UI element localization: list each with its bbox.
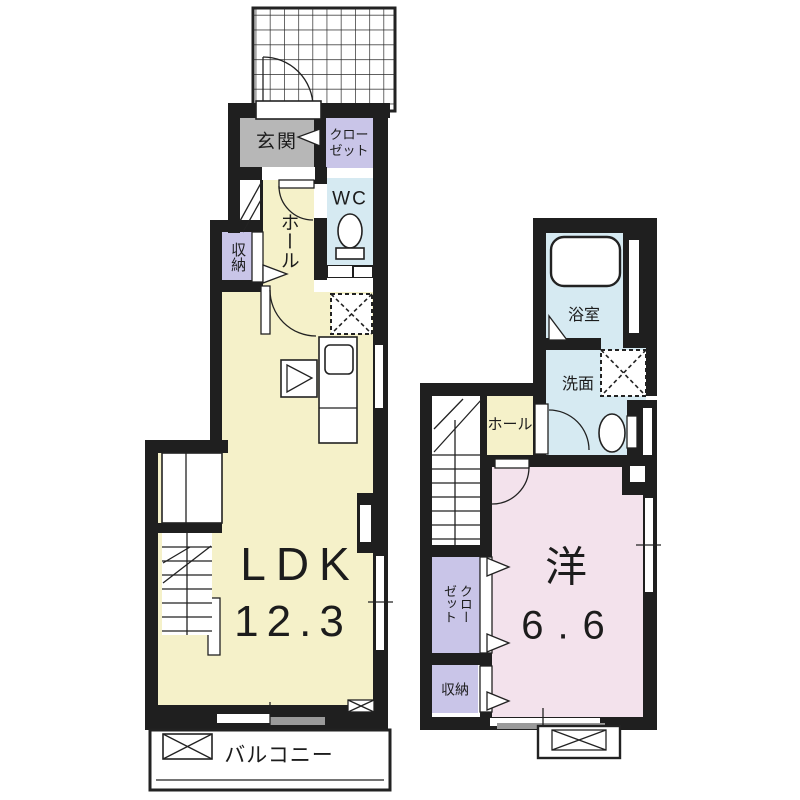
washbasin-icon: [599, 414, 625, 452]
label-ldk: LDK: [240, 536, 359, 592]
label-storage-2f: 収納: [441, 681, 469, 698]
label-hall-1f: ホール: [276, 213, 299, 270]
label-washroom: 洗面: [562, 375, 594, 395]
entrance-porch: [253, 8, 395, 111]
floor1-plan: [145, 8, 395, 790]
label-ldk-size: 12.3: [234, 595, 352, 649]
sink-icon: [325, 345, 353, 374]
label-bathroom: 浴室: [568, 306, 600, 326]
floorplan-drawing: [0, 0, 800, 800]
label-wc: WC: [332, 187, 368, 210]
label-storage-1f: 収納: [228, 242, 246, 272]
label-hall-2f: ホール: [487, 416, 532, 434]
floorplan-canvas: 玄関 クローゼット ホール WC 収納 LDK 12.3 バルコニー 浴室 洗面…: [0, 0, 800, 800]
storage1f-door: [252, 232, 263, 282]
label-balcony: バルコニー: [224, 743, 334, 769]
outdoor-unit-bay: [538, 726, 620, 758]
staircase-2f: [432, 396, 482, 545]
label-closet-2f: クローゼット: [441, 585, 473, 624]
toilet-icon: [336, 214, 364, 259]
label-closet-1f: クローゼット: [329, 127, 368, 159]
label-western-room: 洋: [545, 541, 587, 592]
floor2-plan: [420, 218, 661, 758]
label-genkan: 玄関: [256, 130, 298, 153]
label-western-room-size: 6.6: [521, 602, 619, 651]
stair-window-bay: [162, 453, 222, 523]
